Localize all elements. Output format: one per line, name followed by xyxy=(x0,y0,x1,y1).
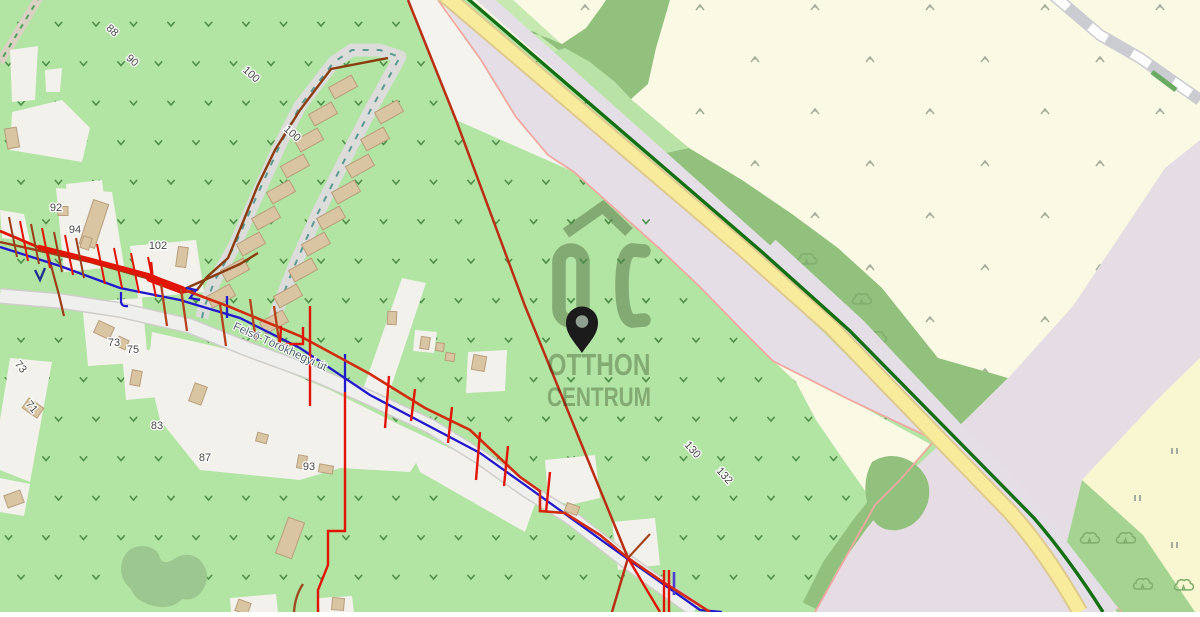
svg-text:94: 94 xyxy=(69,224,81,236)
svg-text:102: 102 xyxy=(149,240,167,252)
svg-text:75: 75 xyxy=(127,344,139,356)
svg-text:73: 73 xyxy=(108,337,120,349)
svg-text:87: 87 xyxy=(199,452,211,464)
svg-text:93: 93 xyxy=(303,461,315,473)
svg-text:83: 83 xyxy=(151,420,163,432)
svg-text:92: 92 xyxy=(50,202,62,214)
